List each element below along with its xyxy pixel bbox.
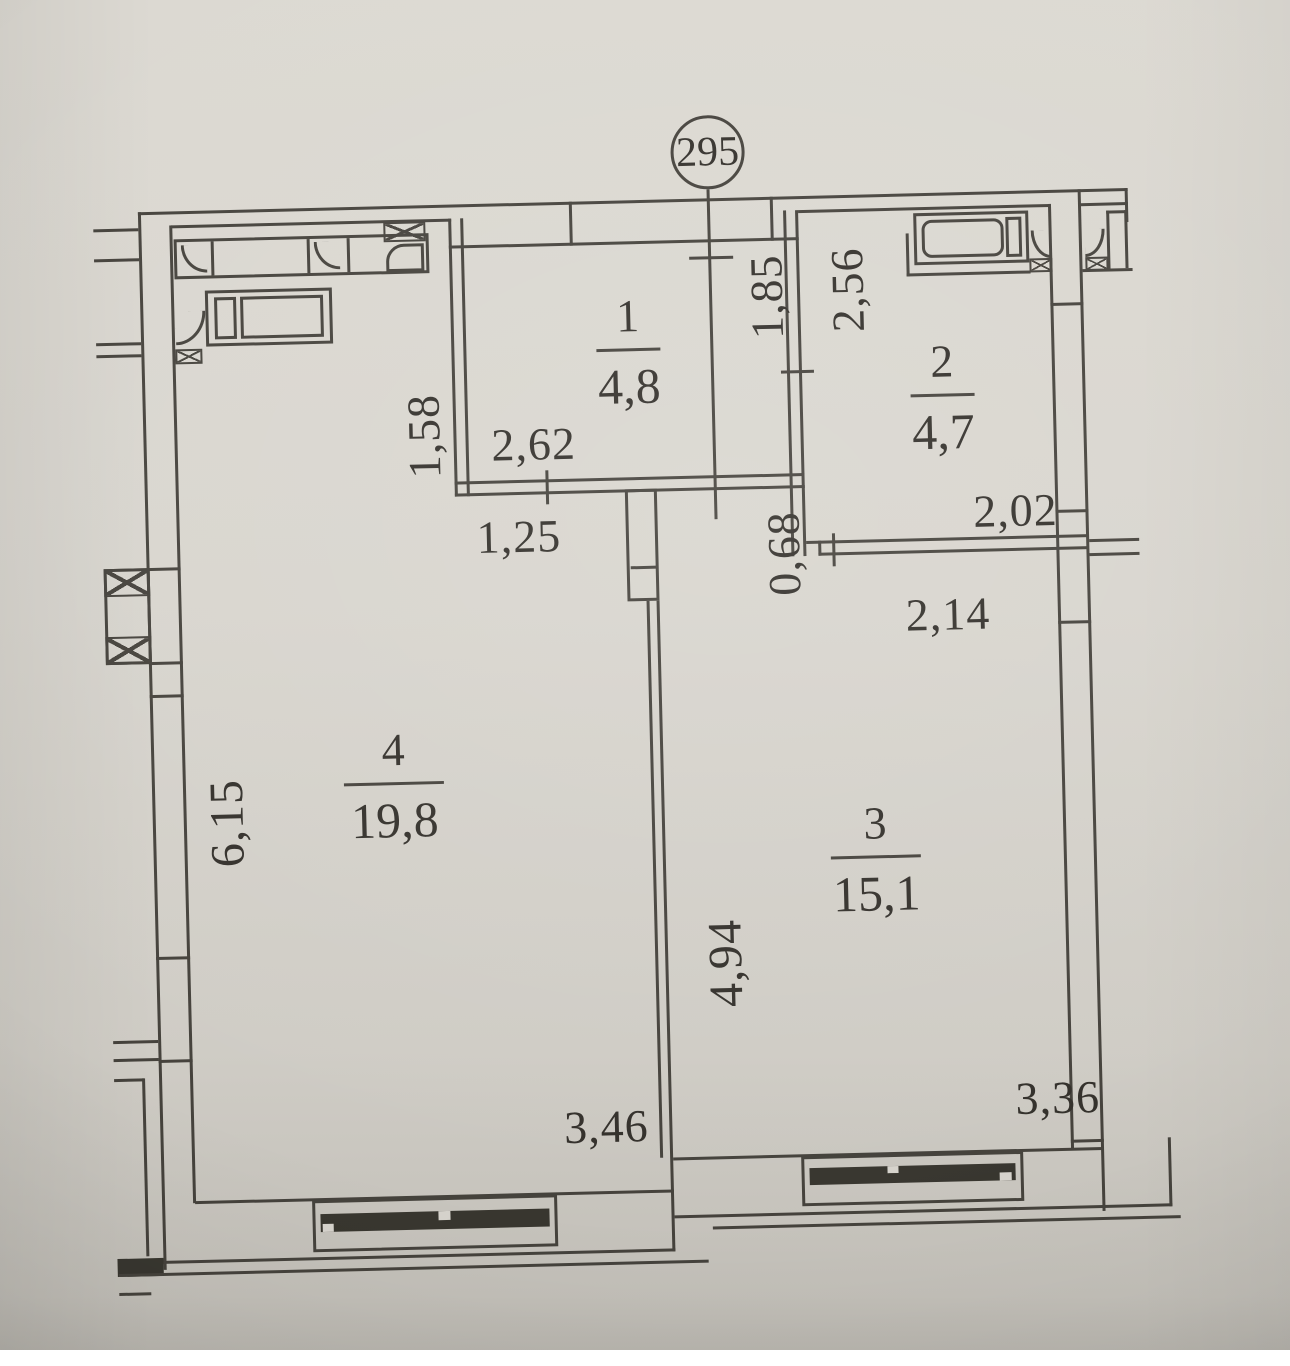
room-number: 3 xyxy=(804,798,945,850)
dim-kitchen-side: 1,58 xyxy=(396,356,452,517)
plan-number: 295 xyxy=(676,129,740,177)
wall-bottom3-endcap xyxy=(1168,1137,1173,1206)
window-notch xyxy=(1000,1172,1012,1180)
wall-right-tick xyxy=(1071,1139,1104,1143)
floor-plan: 295 xyxy=(0,0,1290,1366)
balcony-edge xyxy=(142,1078,149,1256)
wall-room2-bottom xyxy=(818,546,1088,556)
room-label-divider xyxy=(344,781,444,786)
vent-shaft-hatch-icon xyxy=(104,568,151,597)
room-area: 4,8 xyxy=(559,358,700,416)
wall-right-outer xyxy=(1078,189,1106,1211)
room-number: 4 xyxy=(323,724,464,776)
dimension-tick xyxy=(689,256,733,260)
room-number: 2 xyxy=(871,336,1012,388)
kitchen-sink-icon xyxy=(175,311,206,346)
wall-left-tick xyxy=(147,567,181,571)
dimension-tick xyxy=(545,470,549,504)
wall-left-inner xyxy=(169,225,196,1203)
wall-room2-bottom-jog xyxy=(818,541,821,556)
wall-right-tick xyxy=(1058,620,1091,624)
corner-cabinet xyxy=(386,243,425,272)
dim-room3-side: 4,94 xyxy=(698,882,754,1043)
door-jamb-left xyxy=(569,202,573,246)
room-label-divider xyxy=(911,393,975,398)
dim-room2-depth: 2,56 xyxy=(820,209,876,370)
bathtub-inner xyxy=(921,218,1004,258)
dimension-tick xyxy=(832,533,836,566)
neighbor-shelf xyxy=(1083,268,1133,272)
room-label-divider xyxy=(596,348,660,353)
room-label-3: 3 15,1 xyxy=(804,798,947,924)
sink-icon xyxy=(1031,230,1052,258)
neighbor-bathtub-edge xyxy=(1106,210,1127,214)
neighbor-stub xyxy=(93,228,138,232)
window-notch xyxy=(323,1224,334,1232)
bathtub-end xyxy=(1005,217,1022,257)
wall-room1-bottom xyxy=(455,473,805,485)
wall-left-tick xyxy=(150,694,184,698)
dim-room1-depth: 1,85 xyxy=(739,216,795,377)
vent-hatch-icon xyxy=(175,349,202,365)
vent-shaft-hatch-icon xyxy=(105,636,152,665)
neighbor-stub xyxy=(1089,538,1139,542)
dim-room4-side: 6,15 xyxy=(200,743,256,904)
neighbor-stub xyxy=(94,258,139,262)
dim-room3-top: 2,14 xyxy=(867,587,1028,643)
neighbor-stub xyxy=(113,1040,158,1044)
floor-plan-photo: 295 xyxy=(0,0,1290,1350)
wall-step xyxy=(670,1157,675,1251)
dim-room3-bottom: 3,36 xyxy=(977,1070,1138,1126)
bath-shelf xyxy=(906,233,910,276)
partition-stub xyxy=(625,489,660,602)
neighbor-stub xyxy=(114,1058,159,1062)
neighbor-bathtub-edge xyxy=(1106,211,1110,269)
plan-number-bubble: 295 xyxy=(670,114,746,190)
room-number: 1 xyxy=(557,291,698,343)
room-label-divider xyxy=(831,855,921,860)
room-area: 15,1 xyxy=(806,865,947,923)
stove-block-inner xyxy=(214,297,237,340)
stove-block-inner xyxy=(240,295,324,339)
room-area: 4,7 xyxy=(873,403,1014,461)
room-label-1: 1 4,8 xyxy=(557,291,700,417)
dim-offset: 0,68 xyxy=(756,473,812,634)
room-area: 19,8 xyxy=(324,792,465,850)
room-label-2: 2 4,7 xyxy=(871,336,1014,462)
neighbor-stub xyxy=(96,354,141,358)
balcony-edge xyxy=(114,1078,144,1082)
window-notch xyxy=(438,1211,450,1220)
balcony-slab-line xyxy=(713,1215,1181,1229)
dim-room1-width: 2,62 xyxy=(453,417,614,473)
vent-hatch-icon xyxy=(383,221,425,242)
partition-step xyxy=(631,566,657,570)
window-notch xyxy=(887,1166,898,1173)
wall-top-inner-neighbor xyxy=(1080,202,1128,206)
wall-left-tick xyxy=(159,1059,193,1063)
neighbor-sink-icon xyxy=(1085,229,1106,257)
wall-left-tick xyxy=(156,956,190,960)
dim-room4-bottom: 3,46 xyxy=(526,1099,687,1155)
neighbor-stub xyxy=(96,342,141,346)
slab-stub xyxy=(119,1292,151,1296)
dim-passage: 1,25 xyxy=(438,509,599,565)
wall-right-tick xyxy=(1050,302,1083,306)
bath-shelf xyxy=(907,270,1031,276)
room-label-4: 4 19,8 xyxy=(323,724,466,850)
neighbor-stub xyxy=(1089,552,1139,556)
wall-left-tick xyxy=(149,661,183,665)
wall-right-inner xyxy=(1048,204,1074,1150)
dim-room2-width: 2,02 xyxy=(935,483,1096,539)
vent-hatch-icon xyxy=(1029,258,1052,273)
